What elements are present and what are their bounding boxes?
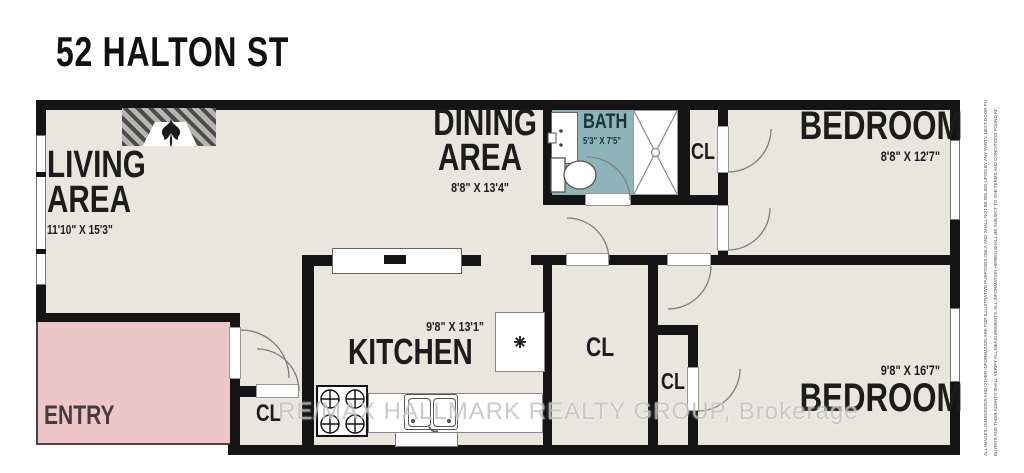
wall-hall-south-c <box>711 255 960 265</box>
dining-dims: 8'8" X 13'4" <box>431 180 529 195</box>
entry-label: ENTRY <box>44 400 115 431</box>
fireplace <box>122 108 216 146</box>
wall-closet2-top <box>648 325 698 335</box>
fine-print-line-2: BUYERS AND THEIR AGENTS SHALL VERIFY ALL… <box>992 100 1000 456</box>
wall-shower-right <box>678 100 690 205</box>
wall-bedroom1-left-a <box>718 100 728 127</box>
window-bedroom2 <box>950 308 960 382</box>
wall-hall-south-b <box>609 255 667 265</box>
window-living <box>36 135 46 285</box>
closet-label-bedroom1: CL <box>691 138 715 165</box>
wall-closet2-right-a <box>688 335 698 368</box>
wall-entry-top <box>36 313 240 322</box>
bedroom1-dims: 8'8" X 12'7" <box>800 148 940 164</box>
bath-label: BATH <box>583 110 627 134</box>
living-dims: 11'10" X 15'3" <box>47 222 146 237</box>
brokerage-watermark: RE/MAX HALLMARK REALTY GROUP, Brokerage <box>278 398 859 426</box>
dining-label-2: AREA <box>433 141 527 176</box>
living-label-2: AREA <box>47 183 146 218</box>
living-area-label-block: LIVING AREA 11'10" X 15'3" <box>47 148 174 237</box>
door-bedroom1 <box>717 205 729 251</box>
page-title: 52 HALTON ST <box>56 28 289 76</box>
door-bath <box>585 193 631 206</box>
door-entry <box>229 327 241 379</box>
window-bedroom1 <box>950 140 960 220</box>
disclaimer-fine-print: ALL IMAGES, DIMENSIONS AND OTHER INFORMA… <box>982 100 999 456</box>
bath-dims: 5'3" X 7'5" <box>583 136 627 147</box>
bath-label-block: BATH 5'3" X 7'5" <box>583 110 640 147</box>
kitchen-label: KITCHEN <box>348 335 473 368</box>
living-label-1: LIVING <box>47 148 146 183</box>
door-hall-closet <box>566 253 609 266</box>
wall-outer-bottom <box>228 445 960 455</box>
wall-entry-right-b <box>230 378 240 445</box>
floorplan-page: 52 HALTON ST <box>0 0 1024 473</box>
bedroom1-label-block: BEDROOM 8'8" X 12'7" <box>760 108 940 164</box>
bath-vanity <box>551 112 578 164</box>
window-living-mullion-2 <box>36 249 46 254</box>
bedroom1-label: BEDROOM <box>800 108 940 145</box>
window-living-mullion-1 <box>36 172 46 177</box>
door-closet1 <box>717 126 729 173</box>
door-entry-closet <box>256 384 299 398</box>
passthrough-bar <box>384 255 406 264</box>
wall-bath-bottom-a <box>543 195 586 205</box>
wall-entrycloset-top <box>240 386 257 397</box>
entry-label-block: ENTRY <box>44 400 135 431</box>
dining-label-1: DINING <box>433 106 527 141</box>
kitchen-label-block: KITCHEN <box>348 335 508 368</box>
door-bedroom2 <box>667 253 711 266</box>
closet-label-bedroom2: CL <box>661 368 685 395</box>
dining-area-label-block: DINING AREA 8'8" X 13'4" <box>420 106 540 195</box>
fine-print-line-1: ALL IMAGES, DIMENSIONS AND OTHER INFORMA… <box>982 100 990 456</box>
wall-bedroom1-left-b <box>718 173 728 206</box>
flame-icon <box>160 119 182 147</box>
closet-label-hall: CL <box>586 332 614 363</box>
